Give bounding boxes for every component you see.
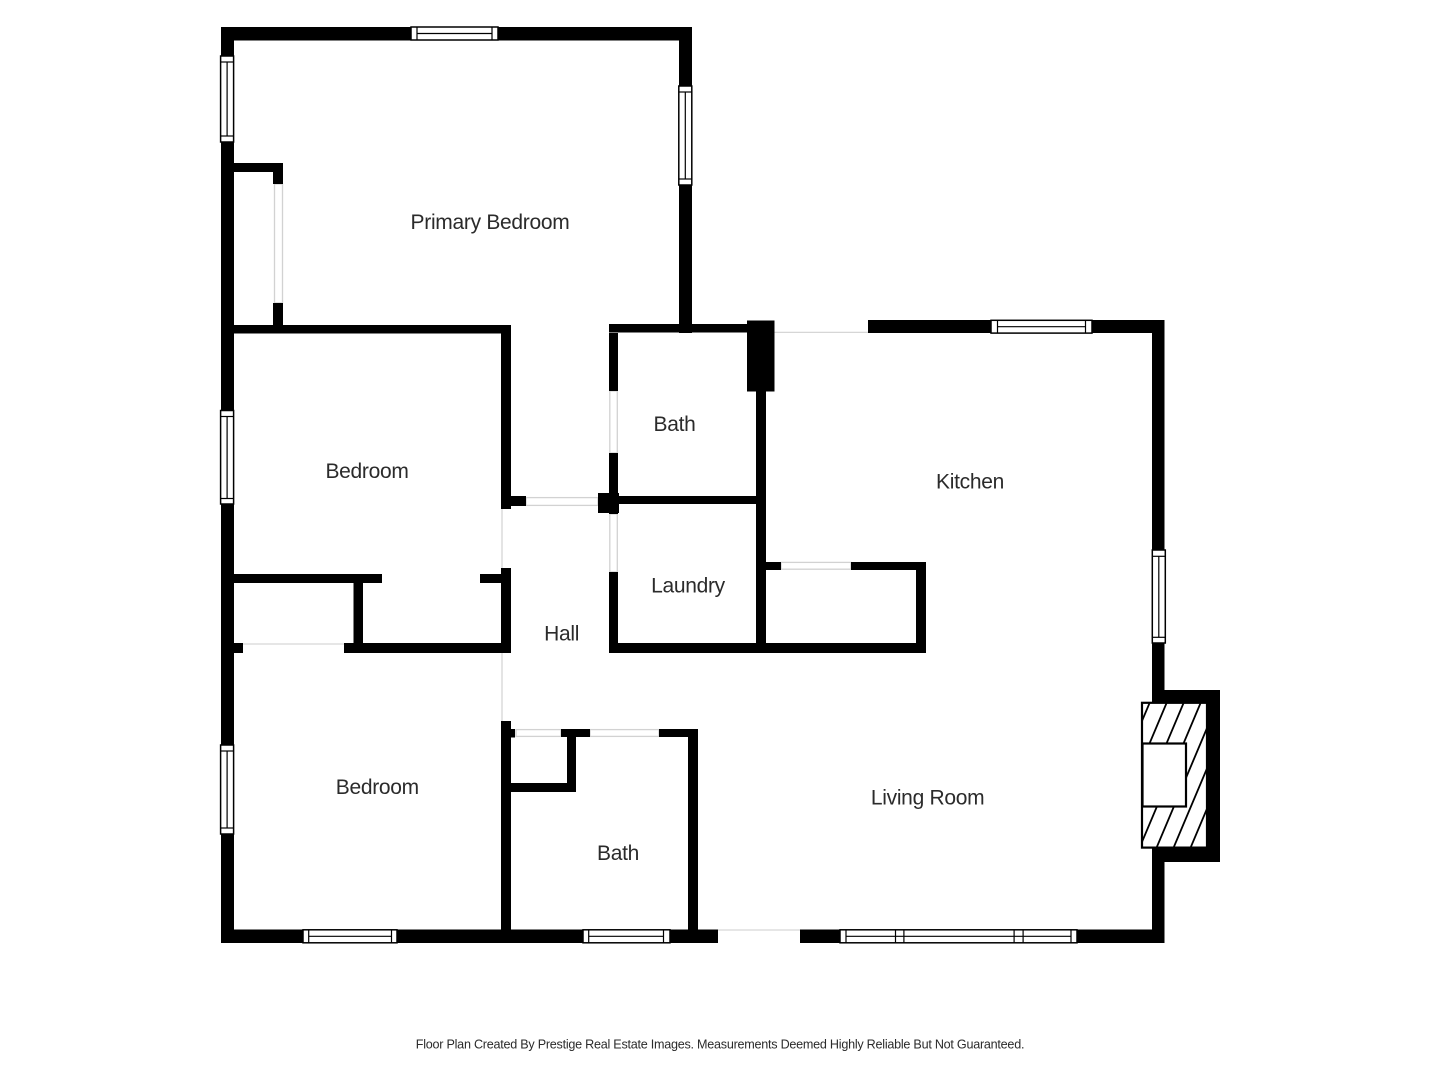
- svg-text:Hall: Hall: [544, 622, 579, 645]
- svg-text:Primary Bedroom: Primary Bedroom: [411, 211, 570, 234]
- svg-text:Bath: Bath: [597, 842, 639, 865]
- svg-text:Laundry: Laundry: [651, 575, 726, 598]
- svg-text:Living Room: Living Room: [871, 786, 984, 809]
- svg-text:Bedroom: Bedroom: [336, 776, 419, 799]
- svg-text:Floor Plan Created By Prestige: Floor Plan Created By Prestige Real Esta…: [416, 1037, 1024, 1051]
- svg-text:Bedroom: Bedroom: [325, 460, 408, 483]
- svg-text:Bath: Bath: [654, 413, 696, 436]
- svg-text:Kitchen: Kitchen: [936, 471, 1004, 494]
